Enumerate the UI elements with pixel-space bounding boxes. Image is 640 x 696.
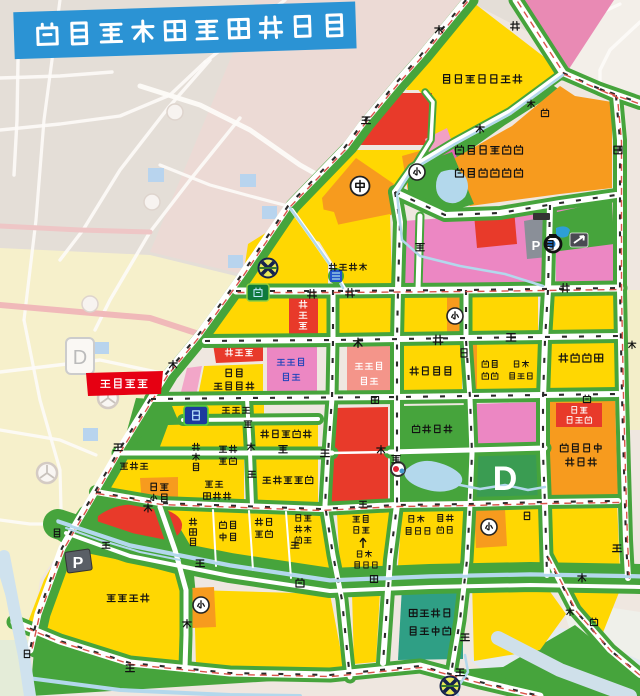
svg-text:P: P (73, 555, 84, 572)
svg-text:D: D (73, 347, 87, 369)
svg-text:P: P (532, 238, 541, 253)
svg-text:D: D (493, 460, 518, 498)
